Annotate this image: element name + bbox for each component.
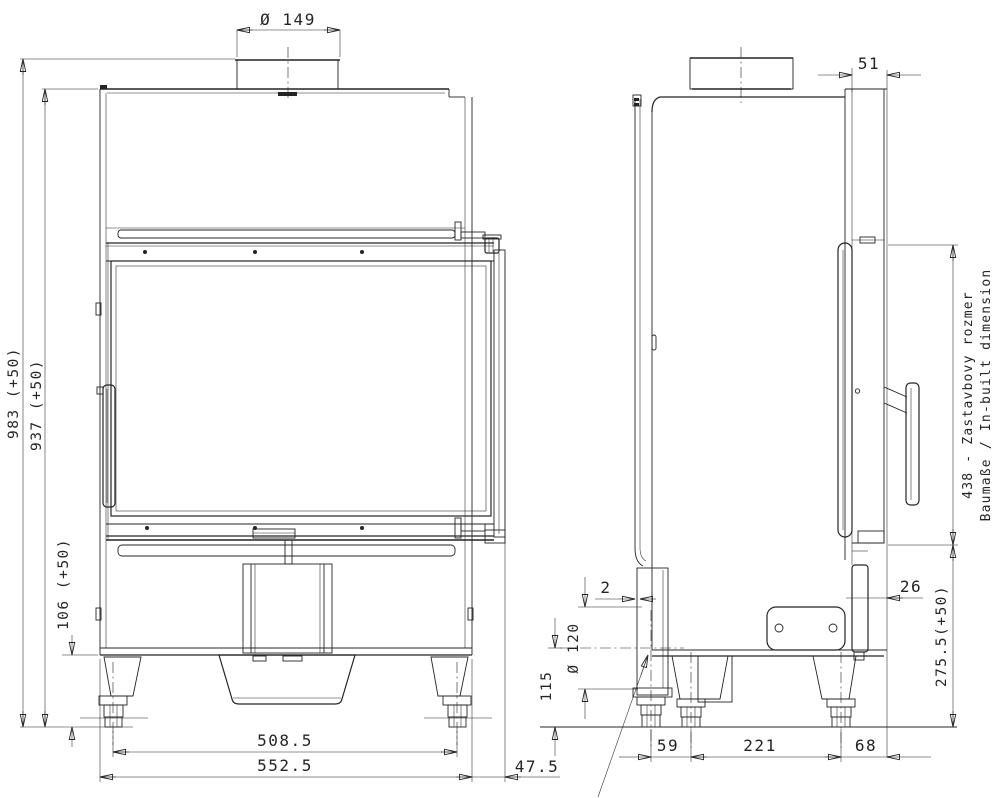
dim-front-frame-depth: 51 (858, 54, 880, 73)
dim-front-foot-offset: 68 (855, 736, 877, 755)
dim-base-height: 106 (+50) (56, 538, 72, 630)
dim-inbuilt-height-cz: 438 - Zastavbovy rozmer (961, 291, 976, 499)
dim-rear-gap: 2 (600, 578, 611, 597)
dim-air-intake-center-height: 115 (539, 671, 555, 702)
dim-air-intake-diameter: Ø 120 (566, 622, 582, 673)
front-view-dimensions: Ø 149 983 (+50) 937 (+50) 106 (+50) 508.… (6, 10, 560, 782)
dim-flue-diameter: Ø 149 (260, 10, 316, 29)
adjustable-foot-right (424, 696, 492, 727)
side-view (540, 47, 957, 797)
dim-lower-panel-setback: 26 (900, 577, 922, 596)
drawing-sheet: Ø 149 983 (+50) 937 (+50) 106 (+50) 508.… (0, 0, 999, 798)
dim-mid-foot-spacing: 221 (743, 736, 776, 755)
dim-body-height: 937 (+50) (29, 359, 45, 451)
dim-total-height: 983 (+50) (6, 347, 22, 439)
dim-door-side-offset: 47.5 (515, 757, 560, 776)
dim-inbuilt-height-en: Baumaße / In-built dimension (979, 269, 994, 522)
adjustable-foot-left (80, 696, 148, 727)
mounting-plate (767, 607, 845, 650)
air-intake-duct (633, 548, 672, 697)
dim-bottom-inbuilt-height: 275.5(+50) (934, 585, 950, 687)
front-view (80, 47, 505, 745)
dim-feet-spacing: 508.5 (257, 731, 313, 750)
dim-rear-foot-spacing: 59 (657, 736, 679, 755)
door-handle-side (884, 383, 919, 505)
technical-drawing: Ø 149 983 (+50) 937 (+50) 106 (+50) 508.… (0, 0, 999, 798)
door-pivot-hardware (455, 222, 505, 543)
dim-overall-width: 552.5 (257, 756, 313, 775)
